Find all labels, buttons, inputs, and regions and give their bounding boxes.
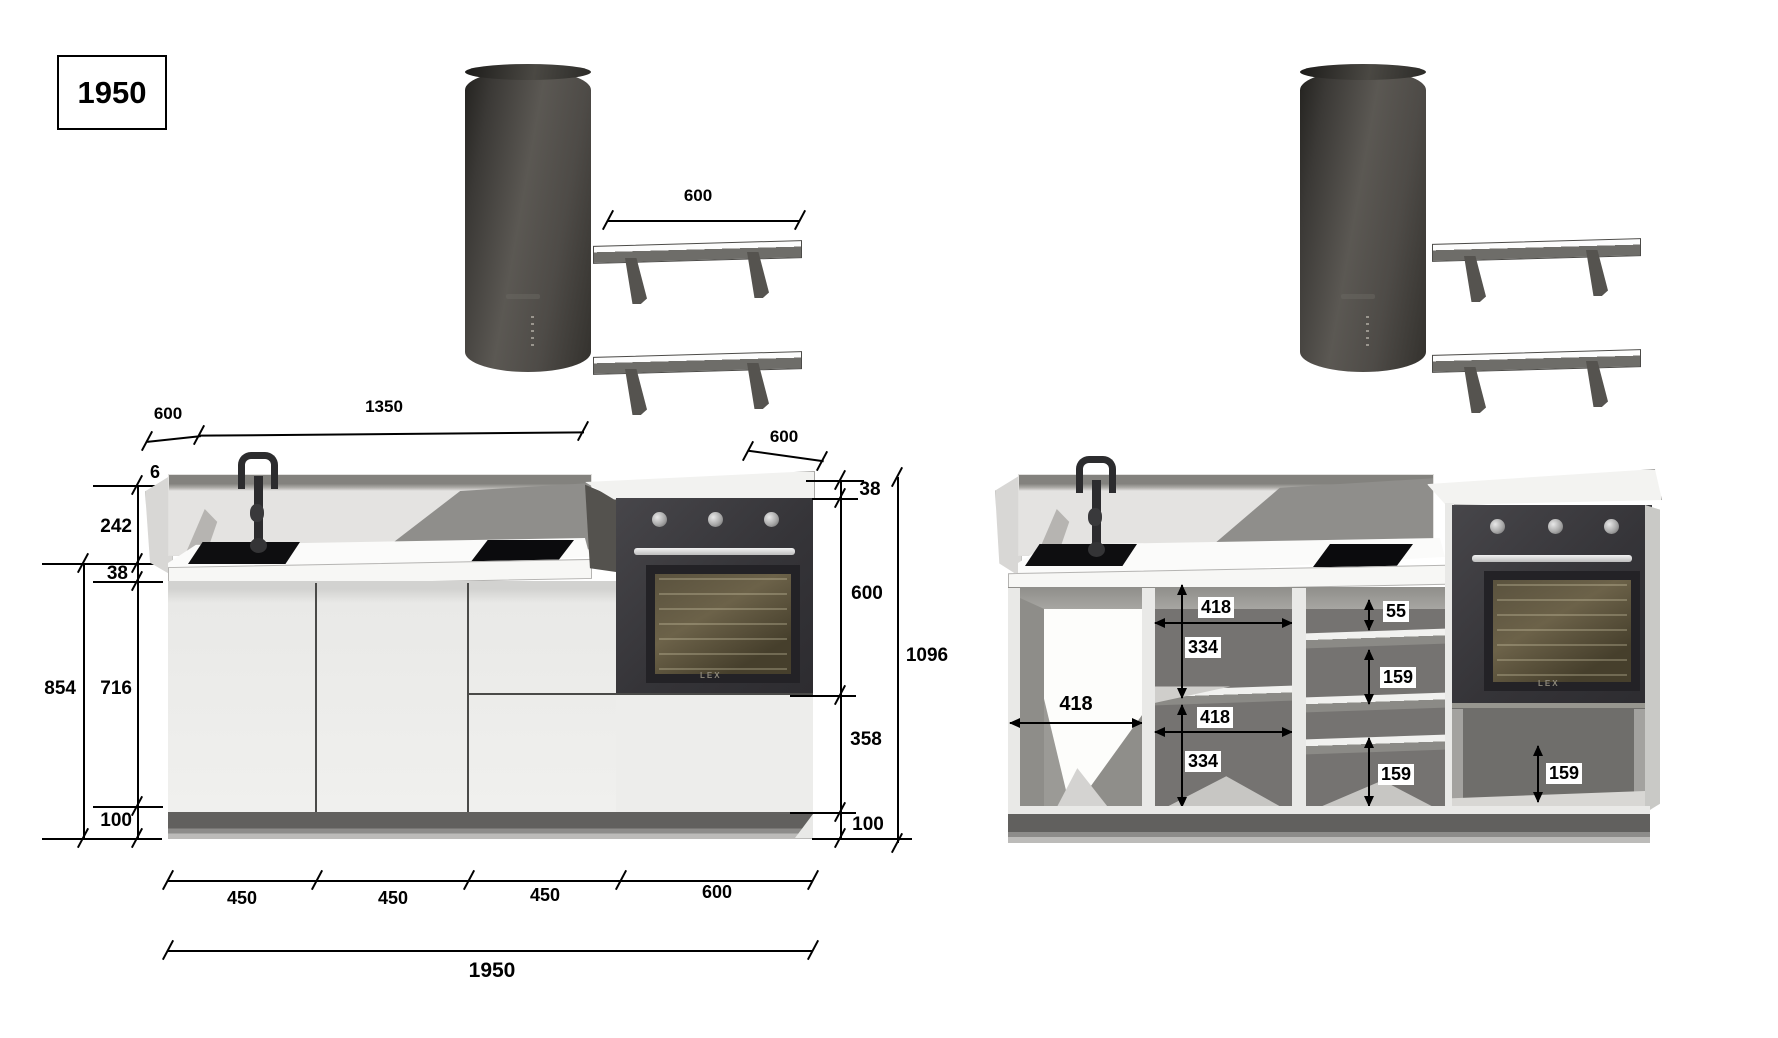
dim-slot-bottom: 159 xyxy=(1378,764,1414,785)
shelf-bracket xyxy=(1464,256,1486,302)
faucet-base xyxy=(1088,542,1105,557)
drawer-side xyxy=(1452,709,1463,809)
shelf-board xyxy=(1432,238,1641,262)
arrow-oven-drawer xyxy=(1537,746,1539,802)
shelf-board xyxy=(1432,349,1641,373)
arrow-mid-top-width xyxy=(1155,622,1292,624)
oven-unit-top xyxy=(1427,469,1662,505)
dim-mid-width-bottom: 418 xyxy=(1197,707,1233,728)
dim-mid-width-top: 418 xyxy=(1198,597,1234,618)
oven-knob xyxy=(1548,519,1563,534)
oven-logo: LEX xyxy=(1538,679,1560,688)
oven-unit-right-panel xyxy=(1645,505,1660,813)
oven-handle xyxy=(1472,555,1632,562)
arrow-slot-middle xyxy=(1368,650,1370,704)
oven: LEX xyxy=(1452,505,1652,703)
cooker-hood-cap xyxy=(1300,64,1426,80)
arrow-mid-bottom-width xyxy=(1155,731,1292,733)
oven-knob xyxy=(1490,519,1505,534)
faucet xyxy=(1076,456,1106,560)
hood-buttons xyxy=(1366,316,1369,346)
faucet-lever xyxy=(1088,508,1102,526)
drawer-shelf xyxy=(1306,735,1445,755)
drawer-shelf xyxy=(1306,629,1445,649)
drawer-back-edge xyxy=(1452,703,1645,708)
oven-knob xyxy=(1604,519,1619,534)
right-section-view: 418 418 334 418 334 55 159 159 xyxy=(0,0,1778,1038)
arrow-mid-top-height xyxy=(1181,585,1183,698)
arrow-slot-top xyxy=(1368,600,1370,630)
drawer-shelf xyxy=(1306,693,1445,713)
arrow-slot-bottom xyxy=(1368,738,1370,806)
dim-slot-middle: 159 xyxy=(1380,667,1416,688)
carcass-left-panel xyxy=(1020,598,1044,815)
plinth xyxy=(1008,814,1650,843)
divider xyxy=(1292,588,1306,815)
dim-slot-top: 55 xyxy=(1383,601,1409,622)
oven-racks xyxy=(1497,584,1627,678)
cooker-hood xyxy=(1300,70,1426,372)
hob xyxy=(1313,544,1413,567)
carcass-left-stile xyxy=(1008,588,1020,815)
arrow-mid-bottom-height xyxy=(1181,705,1183,807)
under-oven-open-drawer xyxy=(1452,703,1645,809)
drawer-section-interior xyxy=(1306,609,1445,813)
hood-logo xyxy=(1341,294,1375,299)
arrow-open-width xyxy=(1010,722,1142,724)
dim-mid-height-bottom: 334 xyxy=(1185,751,1221,772)
dim-mid-height-top: 334 xyxy=(1185,637,1221,658)
dim-oven-drawer: 159 xyxy=(1546,763,1582,784)
dim-open-width: 418 xyxy=(1046,694,1106,715)
shelf-bracket xyxy=(1464,367,1486,413)
oven-window xyxy=(1484,571,1640,691)
kitchen-drawing-canvas: 1950 600 600 1350 xyxy=(0,0,1778,1038)
carcass-bottom-rail xyxy=(1008,806,1650,814)
